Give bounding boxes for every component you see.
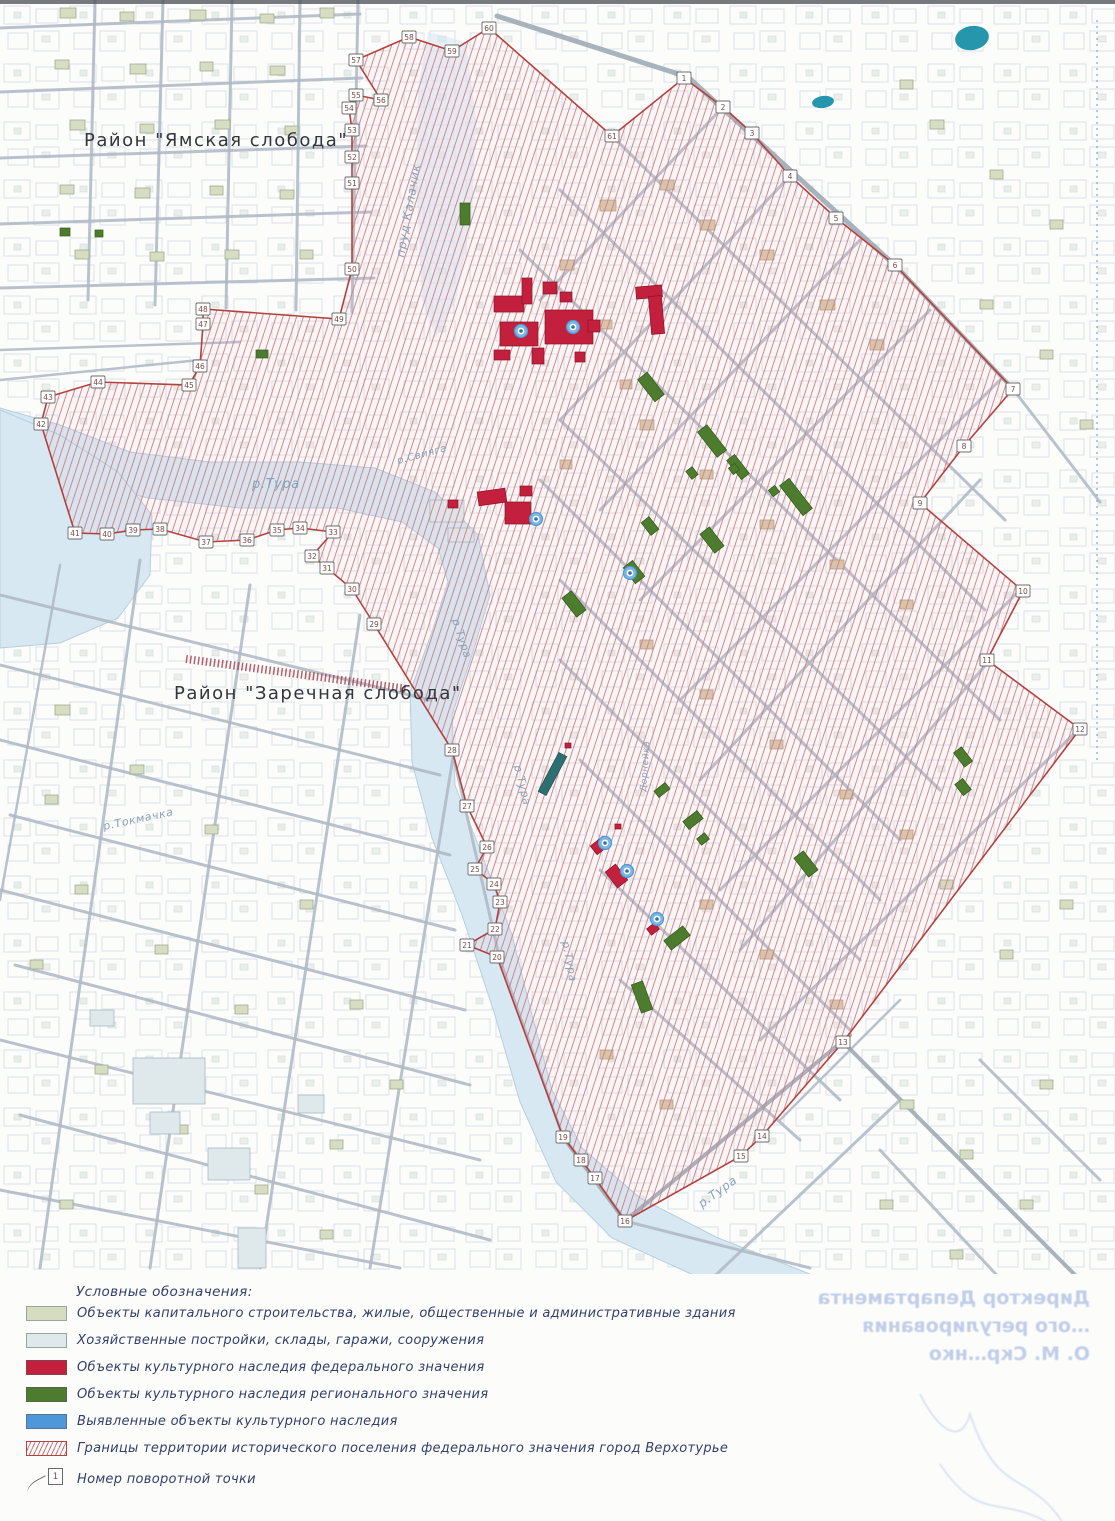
legend-item-label: Номер поворотной точки — [77, 1472, 256, 1487]
boundary-point-number: 41 — [70, 529, 80, 538]
household-building — [208, 1148, 250, 1180]
legend-item-label: Объекты капитального строительства, жилы… — [77, 1306, 736, 1321]
boundary-point-marker: 44 — [91, 376, 105, 388]
map-legend: Условные обозначения: Объекты капитально… — [26, 1276, 746, 1502]
boundary-point-marker: 36 — [240, 534, 254, 546]
boundary-point-number: 32 — [307, 552, 317, 561]
capital-building — [320, 1230, 333, 1239]
boundary-point-marker: 37 — [199, 536, 213, 548]
boundary-point-number: 52 — [347, 153, 357, 162]
boundary-point-marker: 5 — [829, 212, 843, 224]
boundary-point-marker: 31 — [320, 562, 334, 574]
boundary-point-number: 53 — [347, 126, 357, 135]
capital-building — [880, 1200, 893, 1209]
capital-building — [990, 170, 1003, 179]
federal-heritage-building — [522, 278, 532, 304]
identified-heritage-object-dot — [651, 913, 664, 926]
boundary-point-number: 30 — [347, 585, 357, 594]
federal-heritage-building — [448, 500, 458, 508]
boundary-point-marker: 28 — [445, 744, 459, 756]
capital-building — [225, 250, 239, 259]
federal-heritage-building — [565, 743, 571, 748]
boundary-point-marker: 1 — [677, 72, 691, 84]
boundary-point-marker: 4 — [783, 170, 797, 182]
household-building — [298, 1095, 324, 1113]
boundary-point-number: 42 — [36, 420, 46, 429]
boundary-point-number: 27 — [462, 802, 472, 811]
boundary-point-number: 38 — [155, 525, 165, 534]
capital-building — [280, 190, 294, 199]
boundary-point-marker: 22 — [488, 923, 502, 935]
boundary-point-marker: 18 — [574, 1154, 588, 1166]
capital-building — [1050, 220, 1063, 229]
boundary-point-marker: 35 — [270, 524, 284, 536]
capital-building — [950, 1250, 963, 1259]
capital-building — [390, 1080, 403, 1089]
boundary-point-marker: 25 — [468, 863, 482, 875]
boundary-point-number: 18 — [576, 1156, 586, 1165]
legend-swatch-fill — [26, 1333, 67, 1348]
boundary-point-marker: 57 — [349, 54, 363, 66]
boundary-point-number: 17 — [590, 1174, 600, 1183]
boundary-point-number: 14 — [757, 1132, 767, 1141]
federal-heritage-building — [588, 320, 600, 332]
boundary-point-number: 6 — [893, 261, 898, 270]
capital-building — [1000, 950, 1013, 959]
boundary-point-marker: 51 — [345, 177, 359, 189]
capital-building — [1020, 1200, 1033, 1209]
boundary-point-number: 60 — [484, 24, 494, 33]
boundary-point-number: 51 — [347, 179, 357, 188]
legend-item: Объекты капитального строительства, жилы… — [26, 1306, 746, 1321]
capital-building — [205, 825, 218, 834]
capital-building — [75, 250, 89, 259]
federal-heritage-building — [505, 502, 531, 524]
federal-heritage-building — [494, 350, 510, 360]
legend-swatch-fill — [26, 1387, 67, 1402]
capital-building — [1040, 1080, 1053, 1089]
boundary-point-number: 54 — [344, 104, 354, 113]
legend-swatch-fill — [26, 1306, 67, 1321]
boundary-point-marker: 14 — [755, 1130, 769, 1142]
capital-building — [320, 8, 334, 18]
identified-heritage-object-dot — [621, 865, 634, 878]
boundary-point-marker: 42 — [34, 418, 48, 430]
boundary-point-number: 4 — [788, 172, 793, 181]
capital-building — [135, 188, 150, 198]
boundary-point-marker: 54 — [342, 102, 356, 114]
boundary-point-marker: 38 — [153, 523, 167, 535]
capital-building — [330, 1140, 343, 1149]
map-canvas: 1234567891011121314151617181920212223242… — [0, 0, 1115, 1274]
boundary-point-marker: 47 — [196, 318, 210, 330]
federal-heritage-building — [520, 486, 532, 496]
boundary-point-number: 3 — [750, 129, 755, 138]
boundary-point-number: 13 — [838, 1038, 848, 1047]
capital-building — [55, 705, 70, 715]
legend-item: Хозяйственные постройки, склады, гаражи,… — [26, 1333, 746, 1348]
boundary-point-number: 36 — [242, 536, 252, 545]
boundary-point-marker: 33 — [326, 526, 340, 538]
capital-building — [130, 765, 144, 774]
capital-building — [1040, 350, 1053, 359]
regional-heritage-building — [95, 230, 103, 237]
boundary-point-marker: 9 — [913, 497, 927, 509]
capital-building — [960, 1150, 973, 1159]
boundary-point-number: 8 — [962, 442, 967, 451]
capital-building — [270, 66, 285, 75]
boundary-point-number: 16 — [620, 1217, 630, 1226]
boundary-point-number: 15 — [736, 1152, 746, 1161]
boundary-point-marker: 50 — [345, 263, 359, 275]
federal-heritage-building — [494, 296, 524, 312]
capital-building — [95, 1065, 108, 1074]
boundary-point-number: 29 — [369, 620, 379, 629]
capital-building — [300, 250, 313, 259]
boundary-point-number: 37 — [201, 538, 211, 547]
boundary-point-marker: 17 — [588, 1172, 602, 1184]
household-building — [150, 1112, 180, 1134]
boundary-point-marker: 16 — [618, 1215, 632, 1227]
boundary-point-marker: 20 — [490, 951, 504, 963]
boundary-point-number: 56 — [376, 96, 386, 105]
capital-building — [155, 945, 168, 954]
boundary-point-marker: 45 — [182, 379, 196, 391]
legend-rows: Объекты капитального строительства, жилы… — [26, 1306, 746, 1490]
boundary-point-number: 50 — [347, 265, 357, 274]
boundary-point-marker: 21 — [460, 939, 474, 951]
boundary-point-number: 21 — [462, 941, 472, 950]
capital-building — [930, 120, 944, 129]
boundary-point-number: 61 — [607, 132, 617, 141]
legend-swatch-fill — [26, 1360, 67, 1375]
boundary-point-marker: 13 — [836, 1036, 850, 1048]
boundary-point-marker: 40 — [100, 528, 114, 540]
boundary-point-marker: 56 — [374, 94, 388, 106]
boundary-point-marker: 6 — [888, 259, 902, 271]
boundary-point-marker: 29 — [367, 618, 381, 630]
capital-building — [235, 1005, 248, 1014]
boundary-point-marker: 23 — [493, 896, 507, 908]
boundary-point-number: 49 — [334, 315, 344, 324]
boundary-point-marker: 8 — [957, 440, 971, 452]
boundary-point-marker: 43 — [41, 391, 55, 403]
capital-building — [190, 10, 206, 20]
legend-item: Границы территории исторического поселен… — [26, 1441, 746, 1456]
district-label: Район "Заречная слобода" — [174, 683, 462, 704]
boundary-point-number: 23 — [495, 898, 505, 907]
boundary-point-marker: 52 — [345, 151, 359, 163]
legend-item-label: Границы территории исторического поселен… — [77, 1441, 728, 1456]
boundary-point-marker: 46 — [193, 360, 207, 372]
boundary-point-number: 28 — [447, 746, 457, 755]
boundary-point-number: 19 — [558, 1133, 568, 1142]
capital-building — [70, 120, 85, 130]
legend-title: Условные обозначения: — [76, 1284, 746, 1300]
boundary-point-number: 22 — [490, 925, 500, 934]
identified-heritage-object-dot — [530, 513, 543, 526]
boundary-point-number: 10 — [1018, 587, 1028, 596]
boundary-point-number: 34 — [295, 524, 305, 533]
boundary-point-number: 59 — [447, 47, 457, 56]
boundary-point-marker: 11 — [980, 654, 994, 666]
point-number-sample-box: 1 — [48, 1468, 63, 1485]
boundary-point-marker: 60 — [482, 22, 496, 34]
boundary-point-number: 44 — [93, 378, 103, 387]
regional-heritage-building — [256, 350, 268, 358]
boundary-point-number: 58 — [404, 33, 414, 42]
boundary-point-marker: 15 — [734, 1150, 748, 1162]
scanned-map-page: 1234567891011121314151617181920212223242… — [0, 0, 1115, 1521]
boundary-point-number: 9 — [918, 499, 923, 508]
bleed-through-line: Директор Департамента — [770, 1284, 1090, 1312]
legend-item: 1Номер поворотной точки — [26, 1468, 746, 1490]
bleed-through-line: О. М. Скр…нко — [770, 1340, 1090, 1368]
capital-building — [1080, 420, 1093, 429]
capital-building — [75, 885, 88, 894]
identified-heritage-object-dot — [599, 837, 612, 850]
capital-building — [1060, 900, 1073, 909]
boundary-point-number: 57 — [351, 56, 361, 65]
boundary-point-number: 33 — [328, 528, 338, 537]
boundary-point-number: 55 — [351, 91, 361, 100]
legend-item: Объекты культурного наследия федеральног… — [26, 1360, 746, 1375]
capital-building — [55, 60, 69, 69]
boundary-point-number: 45 — [184, 381, 194, 390]
boundary-point-number: 1 — [682, 74, 687, 83]
boundary-point-marker: 61 — [605, 130, 619, 142]
capital-building — [45, 795, 58, 804]
boundary-point-number: 24 — [489, 880, 499, 889]
boundary-point-number: 31 — [322, 564, 332, 573]
legend-item-label: Объекты культурного наследия регионально… — [77, 1387, 488, 1402]
capital-building — [255, 1185, 268, 1194]
boundary-point-marker: 19 — [556, 1131, 570, 1143]
capital-building — [215, 120, 230, 129]
boundary-point-marker: 59 — [445, 45, 459, 57]
capital-building — [200, 62, 213, 71]
boundary-point-marker: 30 — [345, 583, 359, 595]
legend-item: Выявленные объекты культурного наследия — [26, 1414, 746, 1429]
boundary-point-marker: 39 — [126, 524, 140, 536]
federal-heritage-building — [532, 348, 544, 364]
boundary-point-marker: 58 — [402, 31, 416, 43]
household-building — [133, 1058, 205, 1104]
capital-building — [350, 1000, 363, 1009]
household-building — [90, 1010, 114, 1026]
regional-heritage-building — [460, 203, 470, 225]
capital-building — [60, 1200, 73, 1209]
boundary-point-marker: 49 — [332, 313, 346, 325]
boundary-point-number: 25 — [470, 865, 480, 874]
capital-building — [900, 1100, 914, 1109]
capital-building — [60, 8, 76, 18]
boundary-point-marker: 34 — [293, 522, 307, 534]
capital-building — [900, 80, 913, 89]
federal-heritage-building — [560, 292, 572, 302]
federal-heritage-building — [615, 824, 621, 829]
boundary-point-marker: 41 — [68, 527, 82, 539]
capital-building — [60, 185, 74, 194]
boundary-point-number: 39 — [128, 526, 138, 535]
boundary-point-number: 26 — [482, 843, 492, 852]
identified-heritage-object-dot — [515, 325, 528, 338]
boundary-point-marker: 10 — [1016, 585, 1030, 597]
legend-swatch-boundary-hatch — [26, 1441, 67, 1456]
identified-heritage-object-dot — [567, 321, 580, 334]
water-label: р.Тура — [251, 477, 300, 492]
boundary-point-marker: 12 — [1073, 723, 1087, 735]
boundary-point-number: 5 — [834, 214, 839, 223]
boundary-point-number: 47 — [198, 320, 208, 329]
boundary-point-marker: 48 — [196, 303, 210, 315]
capital-building — [30, 960, 43, 969]
legend-swatch-point-number: 1 — [26, 1468, 67, 1490]
boundary-point-marker: 7 — [1006, 383, 1020, 395]
federal-heritage-building — [543, 282, 557, 294]
boundary-point-number: 12 — [1075, 725, 1085, 734]
boundary-point-marker: 2 — [716, 101, 730, 113]
capital-building — [260, 14, 274, 23]
identified-heritage-object-dot — [624, 567, 637, 580]
capital-building — [210, 186, 223, 195]
capital-building — [300, 900, 313, 909]
legend-item-label: Выявленные объекты культурного наследия — [77, 1414, 398, 1429]
boundary-point-marker: 32 — [305, 550, 319, 562]
legend-item-label: Хозяйственные постройки, склады, гаражи,… — [77, 1333, 484, 1348]
boundary-point-number: 48 — [198, 305, 208, 314]
boundary-point-marker: 3 — [745, 127, 759, 139]
boundary-point-number: 43 — [43, 393, 53, 402]
boundary-point-number: 20 — [492, 953, 502, 962]
capital-building — [120, 12, 134, 21]
household-building — [238, 1228, 266, 1268]
regional-heritage-building — [60, 228, 70, 236]
legend-item-label: Объекты культурного наследия федеральног… — [77, 1360, 484, 1375]
capital-building — [980, 300, 993, 309]
boundary-point-marker: 27 — [460, 800, 474, 812]
boundary-point-marker: 26 — [480, 841, 494, 853]
capital-building — [130, 64, 146, 74]
boundary-point-number: 35 — [272, 526, 282, 535]
boundary-point-marker: 55 — [349, 89, 363, 101]
federal-heritage-building — [575, 352, 585, 362]
boundary-point-number: 7 — [1011, 385, 1016, 394]
bleed-through-line: …ого регулирования — [770, 1312, 1090, 1340]
capital-building — [150, 252, 164, 261]
district-label: Район "Ямская слобода" — [84, 130, 348, 151]
scan-edge-artifact — [0, 0, 1115, 4]
boundary-point-number: 46 — [195, 362, 205, 371]
boundary-point-marker: 24 — [487, 878, 501, 890]
boundary-point-number: 2 — [721, 103, 726, 112]
bleed-through-signature — [870, 1374, 1090, 1521]
bleed-through-text: Директор Департамента…ого регулированияО… — [770, 1284, 1090, 1521]
boundary-point-number: 40 — [102, 530, 112, 539]
legend-swatch-fill — [26, 1414, 67, 1429]
legend-item: Объекты культурного наследия регионально… — [26, 1387, 746, 1402]
boundary-point-number: 11 — [982, 656, 992, 665]
